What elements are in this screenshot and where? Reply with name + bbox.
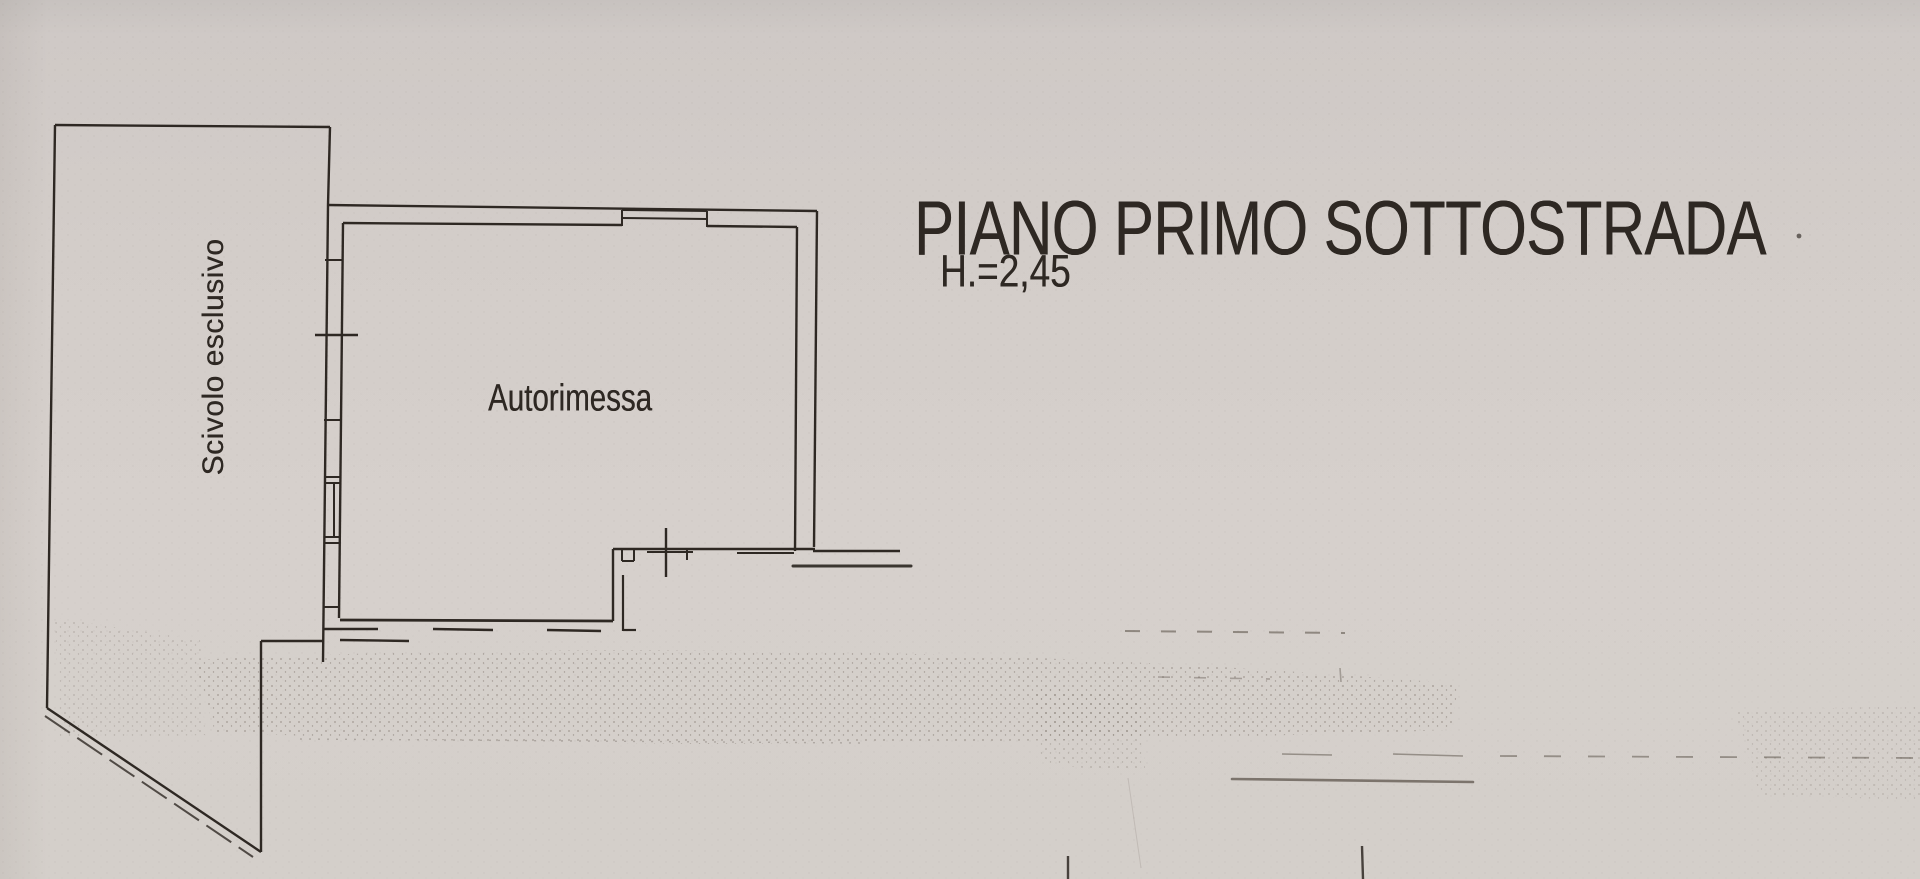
floor-plan-linework [0, 0, 1920, 879]
plan-height-note: H.=2,45 [940, 246, 1071, 297]
area-label-scivolo-esclusivo: Scivolo esclusivo [197, 239, 231, 476]
room-label-autorimessa: Autorimessa [488, 377, 652, 421]
title-period-mark [1797, 234, 1802, 239]
scanned-floor-plan-page: PIANO PRIMO SOTTOSTRADA H.=2,45 Autorime… [0, 0, 1920, 879]
scan-grain-texture [0, 0, 1920, 879]
